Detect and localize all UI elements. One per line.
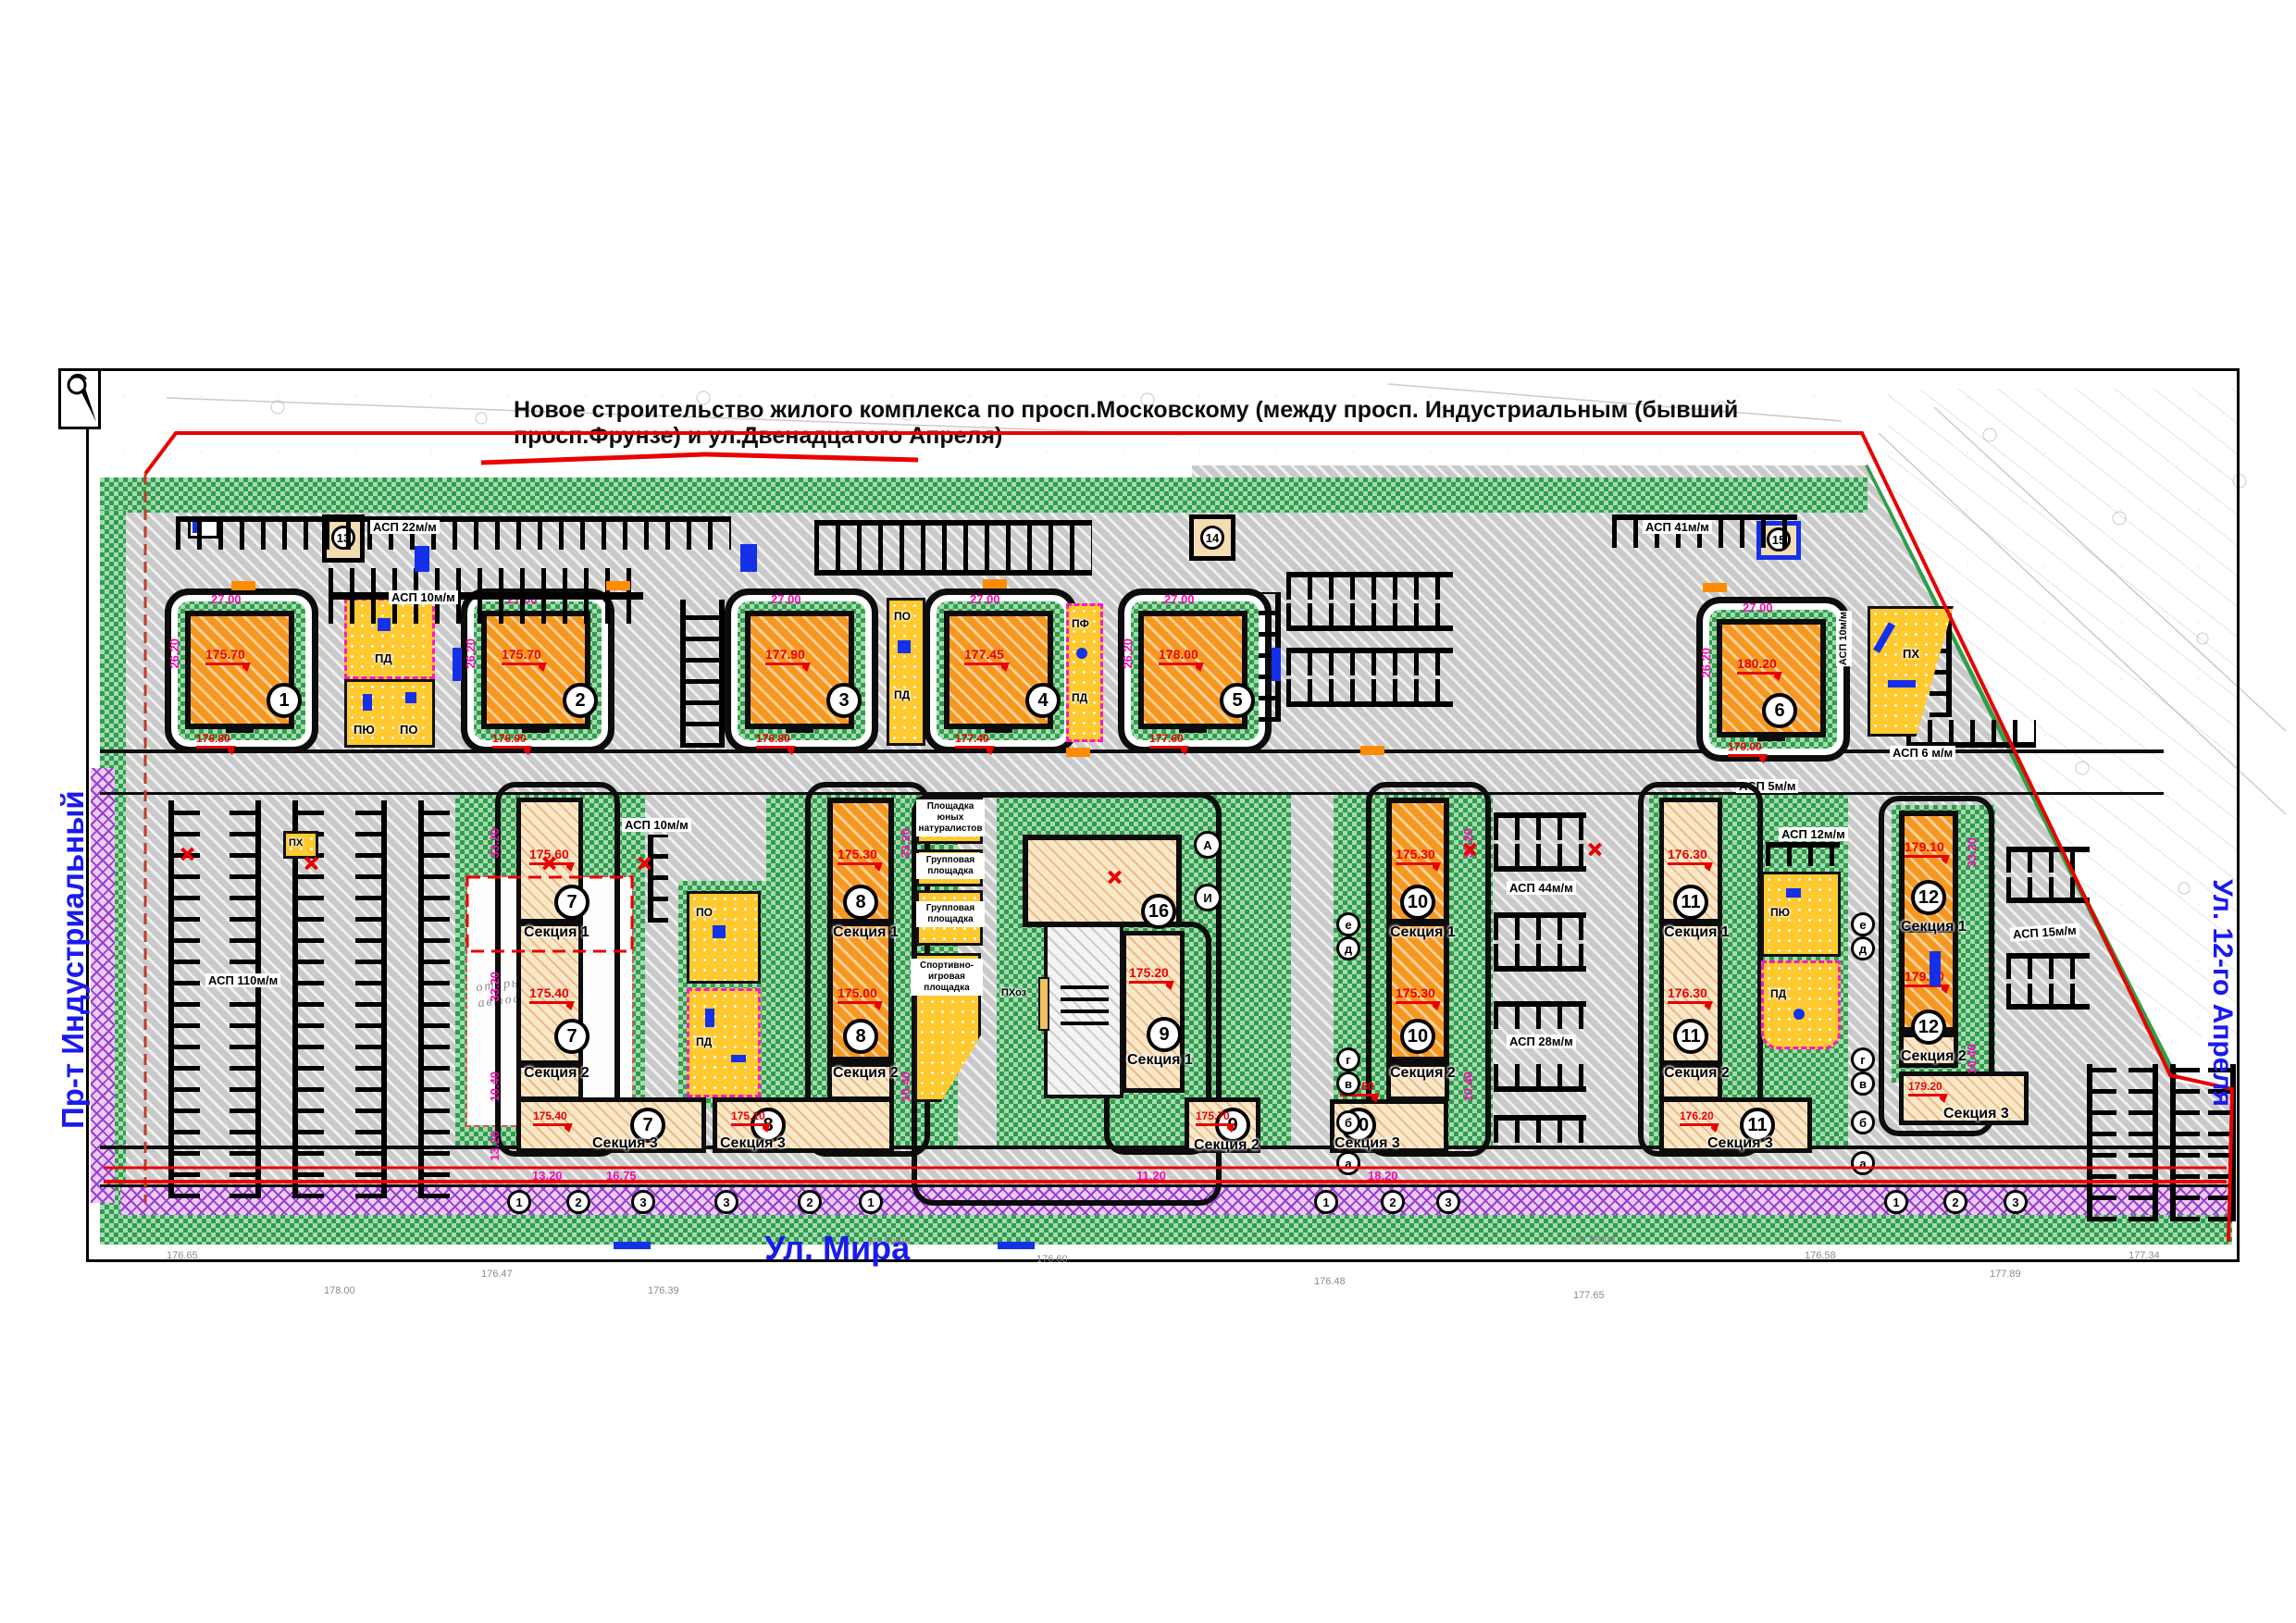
fire-hydrant-mark <box>1462 842 1477 857</box>
survey-mark: 176.58 <box>1805 1251 1836 1261</box>
building-1-elevation-low: 176.80 <box>196 733 233 749</box>
building-8-elev1: 175.30 <box>838 848 880 865</box>
num-text: 11 <box>1681 893 1700 911</box>
parking-comb <box>701 600 725 748</box>
parking-comb <box>2006 984 2090 1010</box>
parking-comb <box>648 835 668 923</box>
playground-11-12-code-pd: ПД <box>1770 988 1786 999</box>
axis-num: 3 <box>2004 1190 2028 1214</box>
axis-num: 1 <box>507 1190 531 1214</box>
building-9-dim-b: 11.20 <box>1136 1170 1166 1182</box>
playground-11-12-code-pyu: ПЮ <box>1770 907 1790 918</box>
building-10-elev2: 175.30 <box>1396 986 1438 1004</box>
building-9-elev1: 175.20 <box>1129 966 1172 984</box>
building-12-number-s1: 12 <box>1911 880 1946 915</box>
building-6-dim-width: 27.00 <box>1743 601 1773 613</box>
axis-text: 2 <box>806 1196 813 1208</box>
building-6-elevation-low: 179.00 <box>1728 741 1765 757</box>
parking-label-a44: АСП 44м/м <box>1507 881 1576 895</box>
building-11-bar <box>1659 798 1722 1101</box>
building-11-elev3: 176.20 <box>1680 1110 1717 1126</box>
building-7-bar <box>516 798 583 1101</box>
playground-px-code: ПХ <box>1903 648 1919 660</box>
building-8-elev3: 175.10 <box>731 1110 768 1126</box>
axis-letter-b-2: б <box>1851 1110 1875 1134</box>
green-top-strip <box>100 477 1868 513</box>
num-text: 8 <box>855 1027 865 1046</box>
parking-comb <box>1494 1064 1586 1092</box>
building-7-elev2: 175.40 <box>529 986 572 1004</box>
parking-comb <box>2006 953 2090 979</box>
service-14-number-text: 14 <box>1206 532 1219 544</box>
building-7-dim-b2: 16.75 <box>606 1170 637 1182</box>
building-7-section1-label: Секция 1 <box>524 925 590 940</box>
kg-label-naturalists: Площадка юных натуралистов <box>916 799 985 836</box>
building-12-elev1: 179.10 <box>1905 840 1947 858</box>
building-6-number: 6 <box>1762 693 1797 728</box>
axis-text: б <box>1859 1117 1867 1129</box>
parking-comb <box>1494 912 1586 940</box>
parking-comb <box>2170 1064 2200 1221</box>
parking-comb <box>2128 1064 2158 1221</box>
num-text: 10 <box>1408 1027 1428 1046</box>
entrance-mark <box>453 648 462 681</box>
building-10-section3-label: Секция 3 <box>1334 1136 1400 1151</box>
entrance-mark <box>415 546 429 572</box>
building-10-section1-label: Секция 1 <box>1390 925 1456 940</box>
building-7-dim3: 10.40 <box>489 1072 501 1102</box>
building-7-dim-b1: 13.20 <box>532 1170 563 1182</box>
axis-text: 2 <box>1952 1196 1958 1208</box>
playground-3-4-code-pd: ПД <box>894 689 910 700</box>
building-1-dim-height: 26.20 <box>168 638 180 669</box>
parking-comb <box>1494 944 1586 972</box>
street-label-left: Пр-т Индустриальный <box>56 731 91 1129</box>
parking-comb <box>176 516 731 550</box>
building-5-number-text: 5 <box>1232 691 1242 710</box>
building-11-section2-label: Секция 2 <box>1664 1066 1730 1081</box>
num-text: 7 <box>566 893 577 911</box>
axis-letter-e-2: е <box>1851 912 1875 936</box>
street-survey-label-1: ул. Мира <box>868 1236 910 1246</box>
gate-mark <box>231 581 255 590</box>
survey-mark: 177.89 <box>1990 1270 2021 1280</box>
building-5-dim-height: 26.20 <box>1122 638 1134 669</box>
service-14-number: 14 <box>1200 526 1224 550</box>
num-text: 7 <box>566 1027 577 1046</box>
building-3-number: 3 <box>826 683 862 718</box>
parking-comb <box>1286 572 1453 600</box>
fire-hydrant-mark <box>541 856 556 871</box>
kg-utility-label: ПХоз <box>1001 988 1026 998</box>
num-text: 11 <box>1747 1116 1767 1134</box>
building-12-section1-label: Секция 1 <box>1901 920 1967 935</box>
num-text: 11 <box>1681 1027 1700 1046</box>
playground-1-2-lower <box>344 679 435 748</box>
building-9-section1-label: Секция 1 <box>1127 1053 1193 1068</box>
building-2-dim-height: 26.20 <box>465 638 477 669</box>
entrance-mark <box>1272 648 1281 681</box>
building-2-elevation-low: 176.90 <box>492 733 529 749</box>
axis-num: 2 <box>1943 1190 1967 1214</box>
play-equip-3 <box>405 692 416 703</box>
playground-px-small-code: ПХ <box>289 838 303 849</box>
building-8-section1-label: Секция 1 <box>833 925 899 940</box>
survey-mark: 178.00 <box>324 1286 355 1296</box>
survey-mark: 177.65 <box>1573 1291 1605 1301</box>
building-4-elevation: 177.45 <box>964 648 1007 665</box>
axis-num: 2 <box>798 1190 822 1214</box>
num-text: 8 <box>855 893 865 911</box>
building-4-dim-width: 27.00 <box>970 593 1000 605</box>
axis-text: 1 <box>1893 1196 1899 1208</box>
building-4-number-text: 4 <box>1037 691 1048 710</box>
gate-mark <box>1066 748 1090 757</box>
building-8-section2-label: Секция 2 <box>833 1066 899 1081</box>
axis-text: е <box>1345 919 1351 931</box>
axis-text: б <box>1345 1117 1352 1129</box>
num-text: 9 <box>1159 1025 1169 1044</box>
building-6-number-text: 6 <box>1774 701 1784 720</box>
axis-text: 1 <box>515 1196 522 1208</box>
playground-7-8-code-po: ПО <box>696 907 713 918</box>
axis-letter-d-1: д <box>1336 936 1360 960</box>
building-11-elev2: 176.30 <box>1668 986 1710 1004</box>
axis-text: 3 <box>723 1196 729 1208</box>
parking-comb <box>1494 1115 1586 1143</box>
playground-7-8-code-pd: ПД <box>696 1036 712 1047</box>
axis-num: 1 <box>859 1190 883 1214</box>
green-bottom-strip <box>100 1214 2232 1245</box>
building-9-elev2: 175.70 <box>1196 1110 1233 1126</box>
building-1-dim-width: 27.00 <box>211 593 242 605</box>
axis-text: 3 <box>639 1196 646 1208</box>
building-12-section3-label: Секция 3 <box>1943 1107 2009 1121</box>
play-equip-6 <box>713 925 726 938</box>
axis-num: 2 <box>566 1190 590 1214</box>
parking-comb <box>1286 603 1453 631</box>
parking-comb <box>814 520 1092 548</box>
axis-num: 1 <box>1884 1190 1908 1214</box>
building-3-number-text: 3 <box>838 691 849 710</box>
building-5-number: 5 <box>1220 683 1255 718</box>
gate-mark <box>1360 746 1384 755</box>
survey-mark: 177.34 <box>2128 1251 2160 1261</box>
parking-label-a12: АСП 12м/м <box>1779 827 1848 841</box>
building-11-elev1: 176.30 <box>1668 848 1710 865</box>
building-2-number: 2 <box>563 683 598 718</box>
building-5-elevation: 178.00 <box>1159 648 1201 665</box>
play-equip-5 <box>1076 648 1087 659</box>
axis-text: 1 <box>867 1196 874 1208</box>
fire-hydrant-mark <box>180 847 194 861</box>
axis-num: 3 <box>631 1190 655 1214</box>
parking-label-a10-b7: АСП 10м/м <box>622 818 691 832</box>
playground-1-2-code-po: ПО <box>400 724 417 736</box>
parking-comb <box>1494 844 1586 872</box>
axis-letter-v-1: в <box>1336 1072 1360 1096</box>
building-8-section3-label: Секция 3 <box>720 1136 786 1151</box>
parking-comb <box>1286 679 1453 707</box>
picnic-table-2 <box>1888 680 1916 688</box>
axis-text: 3 <box>1445 1196 1451 1208</box>
axis-letter-a-2: а <box>1851 1151 1875 1175</box>
entrance-mark <box>1930 951 1941 986</box>
building-7-section2-label: Секция 2 <box>524 1066 590 1081</box>
kindergarten-stairs <box>1061 983 1109 1025</box>
curb-mark <box>614 1242 651 1249</box>
building-11-section3-label: Секция 3 <box>1707 1136 1773 1151</box>
play-equip-9 <box>1786 888 1801 898</box>
building-8-number-s1: 8 <box>843 885 878 920</box>
parking-comb <box>2006 847 2090 873</box>
gate-mark <box>1703 583 1727 592</box>
building-6-dim-height: 26.20 <box>1700 648 1712 678</box>
axis-letter-v-2: в <box>1851 1072 1875 1096</box>
survey-mark: 176.65 <box>167 1251 198 1261</box>
parking-label-a28: АСП 28м/м <box>1507 1035 1576 1048</box>
building-11-number-s2: 11 <box>1673 1019 1708 1054</box>
building-3-elevation: 177.90 <box>765 648 808 665</box>
building-4-elevation-low: 177.40 <box>955 733 992 749</box>
axis-letter-e-1: е <box>1336 912 1360 936</box>
playground-3-4-code-po: ПО <box>894 611 911 622</box>
parking-comb <box>2087 1064 2116 1221</box>
kg-label-group1: Групповая площадка <box>916 853 985 879</box>
building-10-number-s1: 10 <box>1400 885 1435 920</box>
building-7-elev3: 175.40 <box>533 1110 570 1126</box>
parking-label-a10-vertical: АСП 10м/м <box>1836 611 1852 666</box>
parking-comb <box>1494 812 1586 840</box>
play-equip-4 <box>898 640 911 653</box>
site-plan-sheet: Новое строительство жилого комплекса по … <box>0 0 2296 1623</box>
axis-text: в <box>1859 1078 1867 1090</box>
fire-hydrant-mark <box>304 856 318 871</box>
building-6-elevation: 180.20 <box>1737 657 1780 675</box>
parking-comb <box>2006 877 2090 903</box>
building-1-number-text: 1 <box>279 691 289 710</box>
axis-text: г <box>1346 1054 1350 1066</box>
play-equip-7 <box>705 1009 714 1027</box>
gate-mark <box>606 581 630 590</box>
parking-comb <box>329 594 643 624</box>
axis-num: 1 <box>1314 1190 1338 1214</box>
play-equip-2 <box>363 694 372 711</box>
axis-letter-g-2: г <box>1851 1047 1875 1072</box>
axis-text: е <box>1859 919 1866 931</box>
play-equip-8 <box>731 1055 746 1062</box>
fire-hydrant-mark <box>1587 842 1602 857</box>
building-12-elev3: 179.20 <box>1908 1081 1945 1096</box>
building-9-number-s1: 9 <box>1147 1017 1182 1052</box>
building-2-number-text: 2 <box>575 691 585 710</box>
playground-4-5-code-pf: ПФ <box>1072 618 1089 629</box>
building-5-dim-width: 27.00 <box>1164 593 1195 605</box>
axis-text: А <box>1203 839 1211 851</box>
axis-letter-b-1: б <box>1336 1110 1360 1134</box>
parking-comb <box>355 800 387 1198</box>
axis-letter-a-1: а <box>1336 1151 1360 1175</box>
sidewalk-left <box>91 768 115 1203</box>
building-7-number-s1: 7 <box>554 885 590 920</box>
building-4-number: 4 <box>1025 683 1061 718</box>
parking-comb <box>1766 842 1840 866</box>
parking-label-a110: АСП 110м/м <box>205 973 280 987</box>
num-text: 12 <box>1918 888 1939 907</box>
building-3-dim-width: 27.00 <box>771 593 801 605</box>
survey-mark: 176.60 <box>1036 1255 1068 1265</box>
building-12-section2-label: Секция 2 <box>1901 1049 1967 1064</box>
street-label-right: Ул. 12-го Апреля <box>2206 879 2238 1175</box>
building-11-number-s1: 11 <box>1673 885 1708 920</box>
building-10-elev1: 175.30 <box>1396 848 1438 865</box>
building-7-number-s2: 7 <box>554 1019 590 1054</box>
building-12-dim2: 10.40 <box>1966 1044 1978 1074</box>
axis-text: д <box>1345 943 1352 955</box>
building-10-number-s2: 10 <box>1400 1019 1435 1054</box>
axis-text: 1 <box>1322 1196 1329 1208</box>
building-10-dim-b: 18.20 <box>1368 1170 1398 1182</box>
building-8-elev2: 175.00 <box>838 986 880 1004</box>
fire-hydrant-mark <box>1107 870 1122 885</box>
playground-4-5-code-pd: ПД <box>1072 692 1087 703</box>
sheet-title: Новое строительство жилого комплекса по … <box>514 398 1902 449</box>
north-arrow-icon <box>58 368 101 429</box>
playground-1-2-code-pyu: ПЮ <box>354 724 375 736</box>
parking-comb <box>230 800 261 1198</box>
building-9-section2-label: Секция 2 <box>1194 1138 1260 1153</box>
kg-label-group2: Групповая площадка <box>916 901 985 927</box>
survey-mark: 176.48 <box>1314 1277 1346 1287</box>
num-text: 10 <box>1408 893 1428 911</box>
axis-text: 3 <box>2012 1196 2018 1208</box>
axis-letter-d-2: д <box>1851 936 1875 960</box>
parking-comb <box>1494 1001 1586 1029</box>
building-5-elevation-low: 177.60 <box>1149 733 1186 749</box>
num-text: 7 <box>642 1116 652 1134</box>
kg-label-sport: Спортивно-игровая площадка <box>911 959 983 996</box>
building-8-number-s2: 8 <box>843 1019 878 1054</box>
entrance-mark <box>740 544 757 572</box>
axis-num: 3 <box>1436 1190 1460 1214</box>
building-7-dim1: 33.20 <box>489 828 501 859</box>
playground-1-2-code-pd: ПД <box>375 652 392 664</box>
play-equip-10 <box>1793 1009 1805 1020</box>
building-3-elevation-low: 176.80 <box>756 733 793 749</box>
building-10-dim2: 10.40 <box>1462 1072 1474 1102</box>
axis-text: г <box>1860 1054 1865 1066</box>
kindergarten-number: 16 <box>1141 894 1176 929</box>
axis-text: 2 <box>575 1196 581 1208</box>
axis-text: в <box>1345 1078 1352 1090</box>
num-text: 16 <box>1148 902 1169 921</box>
axis-text: а <box>1859 1158 1866 1170</box>
axis-letter-g-1: г <box>1336 1047 1360 1072</box>
axis-text: 2 <box>1389 1196 1396 1208</box>
curb-mark <box>998 1242 1035 1249</box>
axis-text: д <box>1859 943 1867 955</box>
building-8-dim2: 10.40 <box>900 1072 912 1102</box>
building-2-elevation: 175.70 <box>502 648 544 665</box>
building-8-dim1: 33.20 <box>900 828 912 859</box>
num-text: 12 <box>1918 1018 1939 1036</box>
parking-comb <box>1286 648 1453 675</box>
building-11-section1-label: Секция 1 <box>1664 925 1730 940</box>
axis-text: И <box>1203 892 1211 904</box>
axis-num: 2 <box>1381 1190 1405 1214</box>
building-9-bar <box>1122 931 1185 1093</box>
kg-utility-strip <box>1038 977 1049 1031</box>
building-10-section2-label: Секция 2 <box>1390 1066 1456 1081</box>
axis-num: 3 <box>714 1190 738 1214</box>
building-1-number: 1 <box>267 683 302 718</box>
playground-11-12-lower <box>1761 960 1841 1049</box>
parking-comb <box>1906 720 2036 748</box>
fire-hydrant-mark <box>637 856 652 871</box>
axis-text: а <box>1345 1158 1351 1170</box>
building-7-dim2: 33.20 <box>489 972 501 1002</box>
parking-label-a22: АСП 22м/м <box>370 520 440 534</box>
survey-mark: 176.39 <box>648 1286 679 1296</box>
axis-letter-A-kg: А <box>1194 831 1222 859</box>
gate-mark <box>983 579 1007 588</box>
building-12-dim1: 33.20 <box>1966 837 1978 868</box>
axis-letter-I-kg: И <box>1194 884 1222 911</box>
parking-label-a10-topleft: АСП 10м/м <box>389 590 458 604</box>
parking-label-a6: АСП 6 м/м <box>1890 746 1955 760</box>
building-12-number-s2: 12 <box>1911 1010 1946 1045</box>
survey-mark: 176.47 <box>481 1270 513 1280</box>
parking-label-a41: АСП 41м/м <box>1643 520 1712 534</box>
parking-comb <box>418 800 450 1198</box>
building-1-elevation: 175.70 <box>205 648 248 665</box>
building-7-dim4: 13.20 <box>489 1131 501 1161</box>
building-7-section3-label: Секция 3 <box>592 1136 658 1151</box>
parking-comb <box>814 548 1092 576</box>
street-survey-label-2: ул. Мира <box>1573 1234 1615 1245</box>
